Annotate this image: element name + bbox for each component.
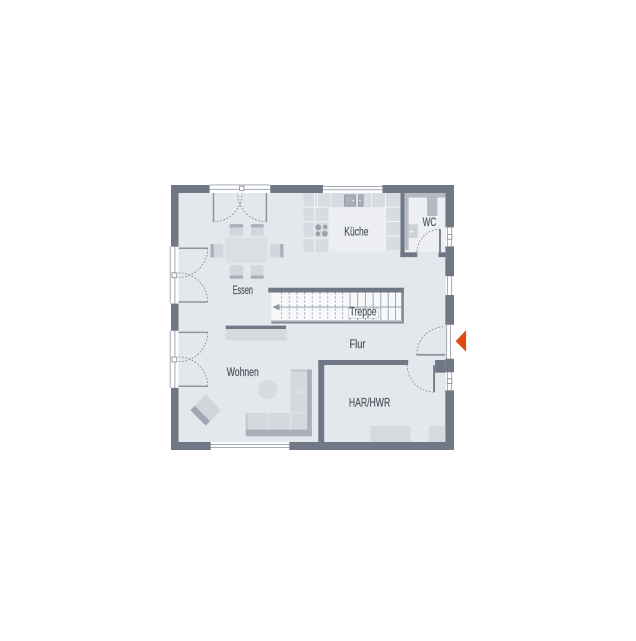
svg-text:HAR/HWR: HAR/HWR xyxy=(349,398,390,410)
svg-text:Wohnen: Wohnen xyxy=(227,367,259,379)
svg-text:Flur: Flur xyxy=(350,339,366,351)
svg-text:WC: WC xyxy=(423,217,437,229)
svg-text:Küche: Küche xyxy=(344,227,368,239)
svg-text:Essen: Essen xyxy=(233,285,253,297)
svg-text:Treppe: Treppe xyxy=(350,307,377,319)
